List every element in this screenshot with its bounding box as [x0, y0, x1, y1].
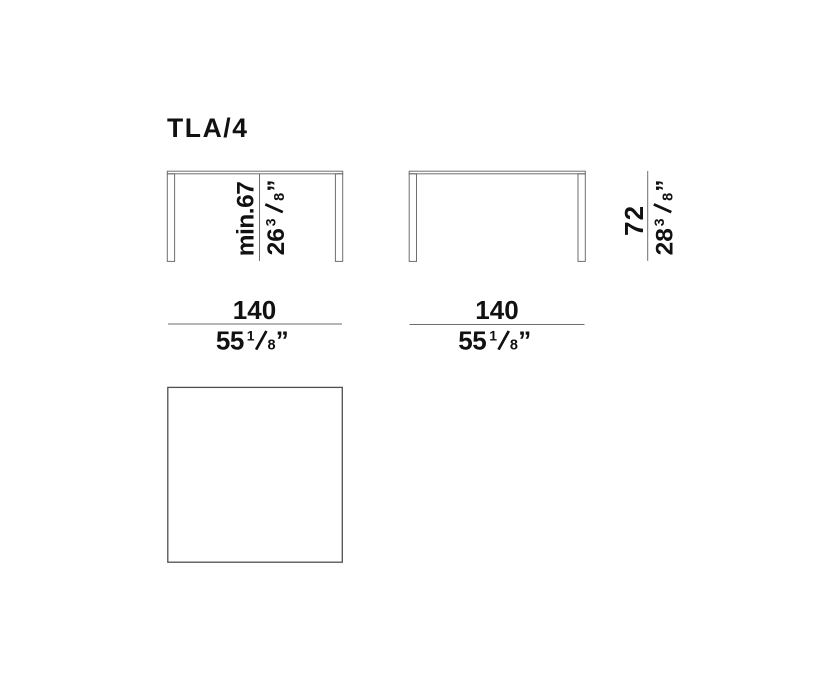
svg-text:8: 8: [510, 337, 518, 353]
svg-text:28: 28: [652, 228, 679, 255]
svg-text:1: 1: [489, 328, 497, 344]
svg-text:72: 72: [619, 205, 649, 236]
svg-text:3: 3: [651, 218, 667, 226]
svg-text:26: 26: [263, 228, 290, 255]
svg-text:3: 3: [262, 218, 278, 226]
svg-text:140: 140: [475, 295, 518, 325]
svg-text:TLA/4: TLA/4: [167, 113, 249, 143]
svg-text:55: 55: [458, 325, 486, 355]
svg-text:”: ”: [276, 325, 289, 355]
svg-text:55: 55: [216, 325, 244, 355]
svg-text:”: ”: [518, 325, 531, 355]
svg-text:”: ”: [652, 179, 679, 191]
svg-text:8: 8: [268, 337, 276, 353]
svg-text:min.67: min.67: [233, 182, 260, 257]
svg-text:8: 8: [272, 193, 288, 201]
svg-text:1: 1: [247, 328, 255, 344]
svg-text:140: 140: [233, 295, 276, 325]
svg-text:8: 8: [661, 193, 677, 201]
svg-text:”: ”: [263, 179, 290, 191]
